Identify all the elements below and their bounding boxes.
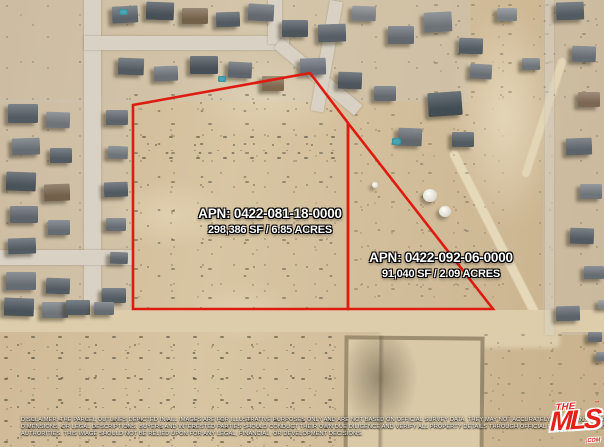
disclaimer-line: DISCLAIMER: THE PARCEL OUTLINES DEPICTED… (21, 417, 596, 424)
parcel-label-1: APN: 0422-081-18-0000 298,386 SF / 6.85 … (155, 206, 385, 237)
parcel-apn: APN: 0422-092-06-0000 (326, 250, 556, 266)
parcel-label-2: APN: 0422-092-06-0000 91,040 SF / 2.09 A… (326, 250, 556, 281)
parcel-size: 298,386 SF / 6.85 ACRES (155, 224, 385, 237)
disclaimer-text: DISCLAIMER: THE PARCEL OUTLINES DEPICTED… (21, 417, 596, 438)
parcel-size: 91,040 SF / 2.09 ACRES (326, 268, 556, 281)
parcel-outline-1 (133, 73, 348, 309)
disclaimer-line: AUTHORITIES. THIS IMAGE SHOULD NOT BE RE… (21, 431, 596, 438)
logo-com-text: .COM (586, 437, 601, 444)
aerial-parcel-map: APN: 0422-081-18-0000 298,386 SF / 6.85 … (0, 0, 604, 447)
parcel-apn: APN: 0422-081-18-0000 (155, 206, 385, 222)
the-mls-logo: THE ™ MLS .COM (548, 399, 601, 447)
disclaimer-line: DIMENSIONS, OR LEGAL DESCRIPTIONS. BUYER… (21, 424, 596, 431)
logo-mls-text: MLS (550, 405, 600, 436)
